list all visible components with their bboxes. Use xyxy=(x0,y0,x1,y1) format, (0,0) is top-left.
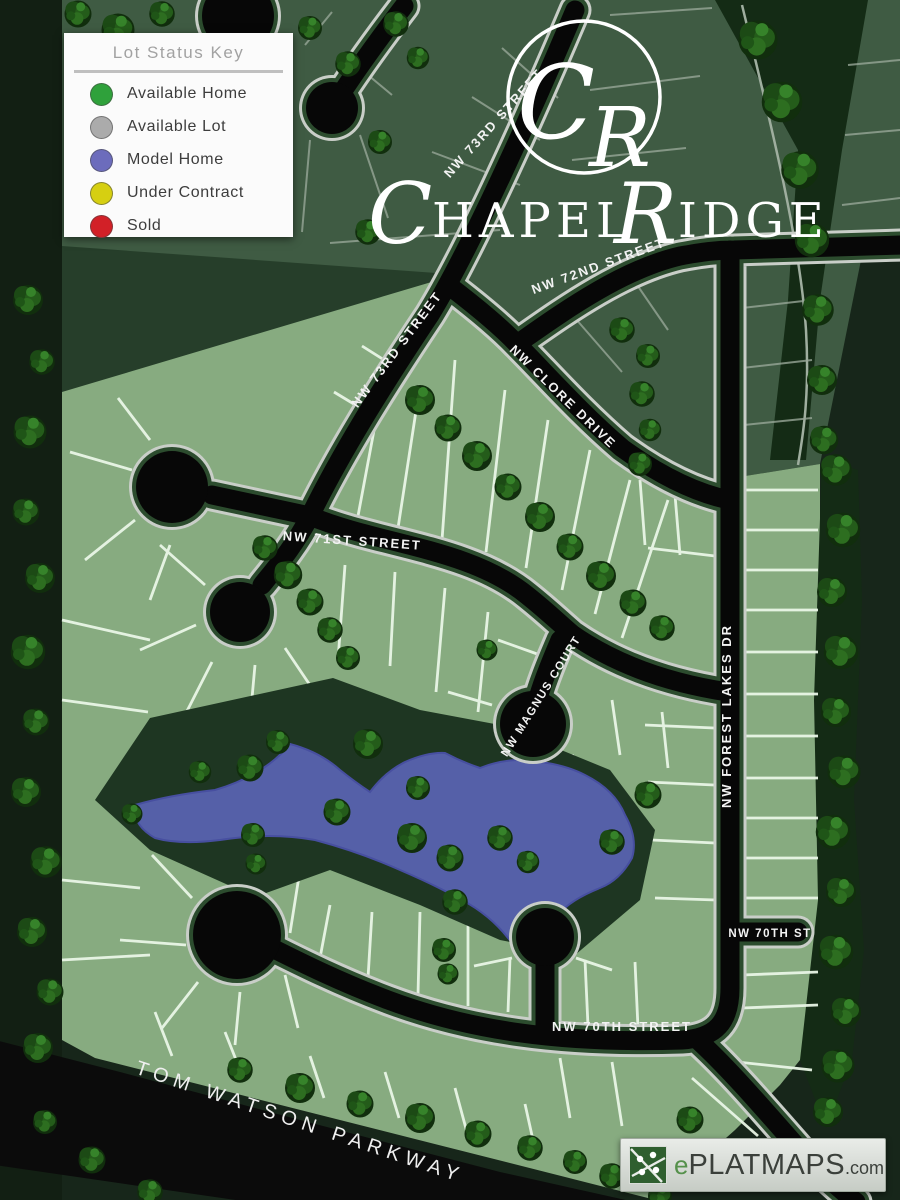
legend-item-label: Under Contract xyxy=(127,184,244,202)
tree-icon xyxy=(824,635,859,670)
tree-icon xyxy=(586,561,616,591)
wordmark-initial-c: C xyxy=(368,165,432,263)
legend-item-label: Available Lot xyxy=(127,118,226,136)
tree-icon xyxy=(297,589,324,616)
tree-icon xyxy=(677,1107,704,1134)
tree-icon xyxy=(353,729,383,759)
tree-icon xyxy=(781,151,819,189)
street-label-nw-70th-st: NW 70TH ST xyxy=(728,928,811,940)
legend-item-label: Available Home xyxy=(127,85,247,103)
tree-icon xyxy=(298,16,322,40)
tree-icon xyxy=(397,823,427,853)
tree-icon xyxy=(563,1150,587,1174)
west-buffer-strip xyxy=(0,0,62,1200)
tree-icon xyxy=(649,615,675,641)
legend-divider xyxy=(74,70,283,73)
tree-icon xyxy=(635,782,662,809)
tree-icon xyxy=(620,590,647,617)
legend-title: Lot Status Key xyxy=(64,43,293,63)
tree-icon xyxy=(189,761,212,784)
tree-icon xyxy=(368,130,392,154)
model-home-dot-icon xyxy=(90,149,113,172)
tree-icon xyxy=(739,21,778,60)
tree-icon xyxy=(462,441,492,471)
eplatmaps-watermark[interactable]: ePLATMAPS.com xyxy=(620,1138,886,1192)
tree-icon xyxy=(405,385,435,415)
tree-icon xyxy=(17,917,47,947)
tree-icon xyxy=(762,82,803,123)
tree-icon xyxy=(477,640,498,661)
tree-icon xyxy=(639,419,662,442)
tree-icon xyxy=(557,534,584,561)
tree-icon xyxy=(12,499,39,526)
tree-icon xyxy=(816,815,851,850)
tree-icon xyxy=(465,1121,492,1148)
watermark-prefix: e xyxy=(674,1150,688,1181)
tree-icon xyxy=(822,1050,855,1083)
tree-icon xyxy=(285,1073,315,1103)
tree-icon xyxy=(237,755,264,782)
tree-icon xyxy=(435,415,462,442)
tree-icon xyxy=(14,416,47,449)
legend-item-sold: Sold xyxy=(90,214,293,238)
tree-icon xyxy=(517,851,540,874)
legend-item-available-lot: Available Lot xyxy=(90,115,293,139)
legend-item-available-home: Available Home xyxy=(90,82,293,106)
under-contract-dot-icon xyxy=(90,182,113,205)
tree-icon xyxy=(599,829,625,855)
tree-icon xyxy=(495,474,522,501)
monogram-c: C xyxy=(517,44,595,163)
tree-icon xyxy=(383,11,409,37)
tree-icon xyxy=(802,294,834,326)
tree-icon xyxy=(828,756,861,789)
tree-icon xyxy=(65,0,92,27)
tree-icon xyxy=(33,1110,57,1134)
tree-icon xyxy=(11,777,41,807)
tree-icon xyxy=(437,845,464,872)
tree-icon xyxy=(487,825,513,851)
tree-icon xyxy=(317,617,343,643)
tree-icon xyxy=(149,1,175,27)
tree-icon xyxy=(25,563,55,593)
street-label-nw-forest-lakes: NW FOREST LAKES DR xyxy=(719,624,734,808)
tree-icon xyxy=(266,730,290,754)
tree-icon xyxy=(820,454,852,486)
tree-icon xyxy=(826,877,856,907)
tree-icon xyxy=(347,1091,374,1118)
wordmark-hapel: HAPEL xyxy=(432,193,633,249)
tree-icon xyxy=(831,997,861,1027)
tree-icon xyxy=(37,979,64,1006)
tree-icon xyxy=(227,1057,253,1083)
tree-icon xyxy=(405,1103,435,1133)
tree-icon xyxy=(628,452,652,476)
tree-icon xyxy=(629,381,655,407)
tree-icon xyxy=(826,513,861,548)
plat-map-page: NW 73RD STREET NW 73RD STREET NW 72ND ST… xyxy=(0,0,900,1200)
sold-dot-icon xyxy=(90,215,113,238)
eplatmaps-logo-icon xyxy=(629,1146,667,1184)
tree-icon xyxy=(336,646,360,670)
tree-icon xyxy=(252,535,278,561)
tree-icon xyxy=(29,349,55,375)
tree-icon xyxy=(442,889,468,915)
legend-item-under-contract: Under Contract xyxy=(90,181,293,205)
tree-icon xyxy=(274,561,303,590)
tree-icon xyxy=(13,285,43,315)
legend-item-label: Model Home xyxy=(127,151,224,169)
tree-icon xyxy=(406,776,430,800)
legend-item-model-home: Model Home xyxy=(90,148,293,172)
tree-icon xyxy=(525,502,555,532)
tree-icon xyxy=(813,1097,843,1127)
tree-icon xyxy=(79,1147,106,1174)
tree-icon xyxy=(241,823,265,847)
tree-icon xyxy=(807,365,837,395)
tree-icon xyxy=(407,47,430,70)
tree-icon xyxy=(609,317,635,343)
tree-icon xyxy=(819,935,854,970)
tree-icon xyxy=(438,964,459,985)
tree-icon xyxy=(246,854,267,875)
available-lot-dot-icon xyxy=(90,116,113,139)
tree-icon xyxy=(517,1135,543,1161)
tree-icon xyxy=(11,635,46,670)
available-home-dot-icon xyxy=(90,83,113,106)
wordmark-idge: IDGE xyxy=(678,193,829,249)
legend-item-label: Sold xyxy=(127,217,161,235)
tree-icon xyxy=(324,799,351,826)
tree-icon xyxy=(23,709,50,736)
tree-icon xyxy=(30,846,62,878)
watermark-tld: .com xyxy=(845,1158,884,1179)
tree-icon xyxy=(817,577,847,607)
wordmark-initial-r: R xyxy=(612,165,677,263)
tree-icon xyxy=(821,697,851,727)
tree-icon xyxy=(23,1033,53,1063)
tree-icon xyxy=(810,426,839,455)
tree-icon xyxy=(122,804,143,825)
watermark-name: PLATMAPS xyxy=(688,1149,845,1182)
tree-icon xyxy=(335,51,361,77)
tree-icon xyxy=(636,344,660,368)
street-label-nw-70th-street: NW 70TH STREET xyxy=(552,1019,692,1034)
lot-status-legend: Lot Status Key Available Home Available … xyxy=(64,33,293,237)
tree-icon xyxy=(432,938,456,962)
